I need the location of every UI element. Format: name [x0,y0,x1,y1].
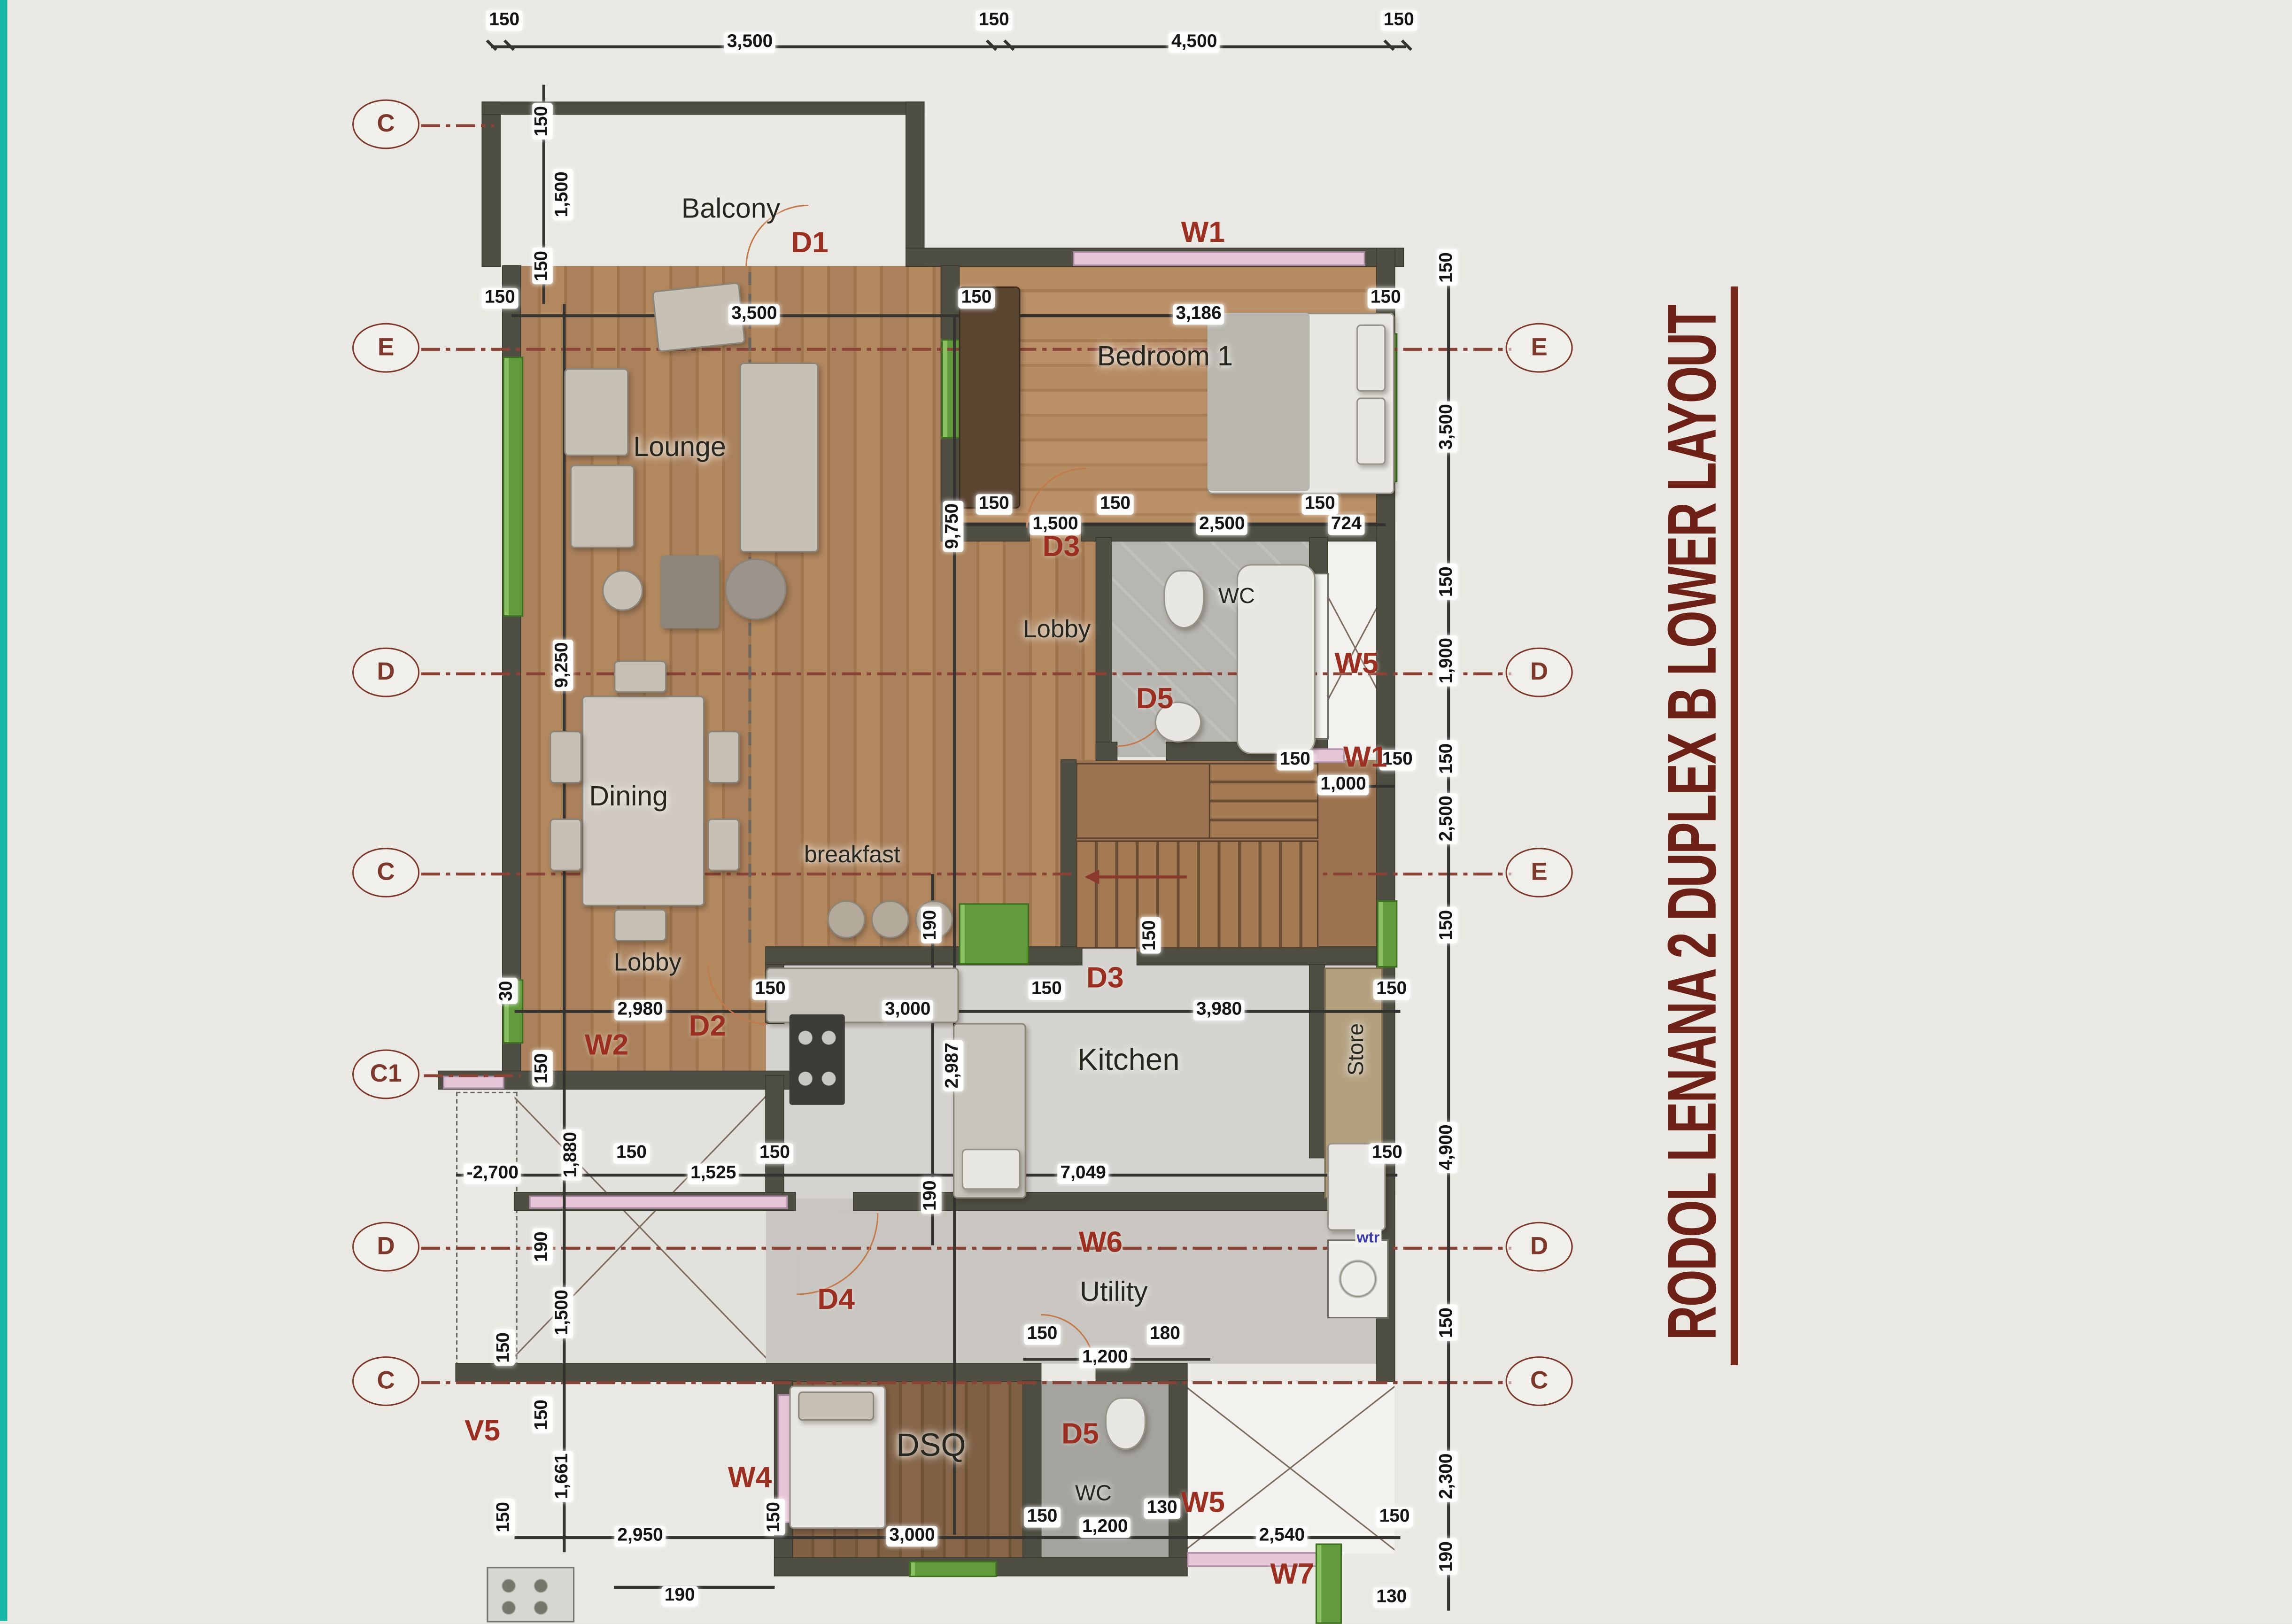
dim-label-1-900: 1,900 [1437,635,1457,687]
red-label-w6: W6 [1079,1227,1123,1261]
dim-label-150: 150 [482,288,518,308]
dim-label-150: 150 [1376,1507,1412,1527]
room-label-breakfast: breakfast [804,843,900,870]
dim-label-2-980: 2,980 [614,1000,666,1020]
dim-label-130: 130 [1144,1498,1180,1518]
dim-label-150: 150 [1369,1143,1405,1163]
dim-label-3-500: 3,500 [728,304,780,325]
bubble-label-c: C [352,100,419,149]
bubble-label-c: C [1506,1356,1573,1406]
dim-label-190: 190 [1437,1539,1457,1575]
room-label-kitchen: Kitchen [1077,1044,1180,1079]
dim-label-7-049: 7,049 [1057,1164,1109,1184]
dim-label-150: 150 [1437,564,1457,600]
room-label-bedroom-1: Bedroom 1 [1097,342,1233,374]
dim-label-2-540: 2,540 [1256,1526,1308,1547]
dim-label-3-500: 3,500 [1437,401,1457,453]
dim-label-150: 150 [976,494,1012,514]
dim-label-1-500: 1,500 [553,169,573,220]
red-label-d5: D5 [1061,1418,1099,1452]
red-label-d1: D1 [791,227,829,261]
dim-label-1-200: 1,200 [1079,1348,1131,1368]
dim-label-190: 190 [532,1229,552,1265]
dim-label-150: 150 [532,1397,552,1433]
dim-label-1-200: 1,200 [1079,1517,1131,1538]
dim-label--2-700: -2,700 [464,1164,521,1184]
dim-label-150: 150 [532,248,552,284]
dim-label-150: 150 [1097,494,1133,514]
room-label-dining: Dining [589,782,668,814]
dim-label-150: 150 [1437,741,1457,777]
bubble-label-c: C [352,1356,419,1406]
bubble-label-d: D [352,648,419,697]
dim-label-724: 724 [1328,515,1364,535]
dim-label-3-980: 3,980 [1193,1000,1245,1020]
dim-label-1-000: 1,000 [1317,775,1369,795]
dim-label-190: 190 [921,1177,941,1214]
dim-label-4-900: 4,900 [1437,1121,1457,1173]
red-label-v5: V5 [465,1415,500,1449]
dim-label-150: 150 [765,1499,785,1535]
dim-label-30: 30 [497,978,518,1004]
room-label-store: Store [1344,1023,1369,1076]
room-label-dsq: DSQ [896,1427,966,1465]
room-label-wc: WC [1218,584,1255,609]
bubble-label-e: E [352,323,419,373]
red-label-w2: W2 [585,1030,628,1064]
bubble-label-d: D [1506,648,1573,697]
red-label-w1: W1 [1181,217,1225,251]
bubble-label-d: D [352,1222,419,1272]
red-label-d3: D3 [1043,531,1080,565]
red-label-w1: W1 [1343,742,1387,775]
red-label-w5: W5 [1181,1487,1225,1521]
dim-label-1-500: 1,500 [553,1287,573,1338]
dim-label-150: 150 [1024,1507,1060,1527]
room-label-wc: WC [1075,1481,1112,1506]
red-label-w4: W4 [728,1462,772,1496]
bubble-label-c: C [352,848,419,897]
dim-label-190: 190 [921,907,941,943]
dim-label-150: 150 [958,288,994,308]
red-label-w7: W7 [1270,1559,1314,1593]
dim-label-1-525: 1,525 [688,1164,739,1184]
red-label-w5: W5 [1334,648,1378,682]
dim-label-2-500: 2,500 [1437,793,1457,844]
room-label-lounge: Lounge [634,433,726,464]
dim-label-150: 150 [757,1143,793,1163]
dim-label-150: 150 [752,980,788,1000]
dim-label-3-500: 3,500 [724,32,776,53]
bubble-label-e: E [1506,848,1573,897]
red-label-d2: D2 [689,1011,727,1044]
dim-label-130: 130 [1373,1587,1409,1608]
dim-label-2-987: 2,987 [943,1040,963,1091]
blue-label-wtr: wtr [1355,1229,1381,1246]
dim-label-2-300: 2,300 [1437,1450,1457,1502]
dim-label-150: 150 [1437,249,1457,286]
room-label-balcony: Balcony [681,194,780,226]
dim-label-3-000: 3,000 [882,1000,934,1020]
dim-label-190: 190 [661,1586,697,1606]
dim-label-1-661: 1,661 [553,1450,573,1502]
dim-label-180: 180 [1147,1324,1183,1345]
dim-label-150: 150 [1024,1324,1060,1345]
dim-label-150: 150 [486,10,522,31]
dim-label-1-880: 1,880 [561,1129,581,1181]
dim-label-150: 150 [1029,980,1065,1000]
bubble-label-e: E [1506,323,1573,373]
room-label-lobby: Lobby [614,949,681,978]
dim-label-3-000: 3,000 [886,1526,938,1547]
dim-label-2-950: 2,950 [614,1526,666,1547]
bubble-label-d: D [1506,1222,1573,1272]
dim-label-9-250: 9,250 [553,639,573,691]
dim-label-150: 150 [976,10,1012,31]
dim-label-150: 150 [613,1143,650,1163]
dim-label-150: 150 [1437,1305,1457,1341]
dim-label-150: 150 [1302,494,1338,514]
dim-label-150: 150 [1140,917,1161,953]
dim-label-3-186: 3,186 [1173,304,1224,325]
bubble-label-c1: C1 [352,1050,419,1099]
dim-label-150: 150 [532,103,552,139]
dim-label-2-500: 2,500 [1196,515,1248,535]
dim-label-150: 150 [1381,10,1417,31]
red-label-d4: D4 [817,1284,855,1318]
dim-label-4-500: 4,500 [1169,32,1220,53]
dim-label-150: 150 [1277,750,1313,770]
dim-label-150: 150 [1368,288,1404,308]
dim-label-9-750: 9,750 [943,500,963,552]
dim-label-150: 150 [532,1050,552,1086]
dim-label-150: 150 [1437,907,1457,943]
dim-label-150: 150 [494,1499,514,1535]
floor-plan-sheet: RODOL LENANA 2 DUPLEX B LOWER LAYOUT 150… [0,0,2292,1621]
red-label-d3: D3 [1086,962,1124,996]
red-label-d5: D5 [1136,683,1174,717]
room-label-utility: Utility [1080,1277,1148,1309]
dim-label-150: 150 [1373,980,1409,1000]
dim-label-150: 150 [494,1330,514,1366]
annotation-layer: 1503,5001504,5001501501,5001501503,50015… [0,0,2292,1621]
room-label-lobby: Lobby [1023,615,1091,644]
